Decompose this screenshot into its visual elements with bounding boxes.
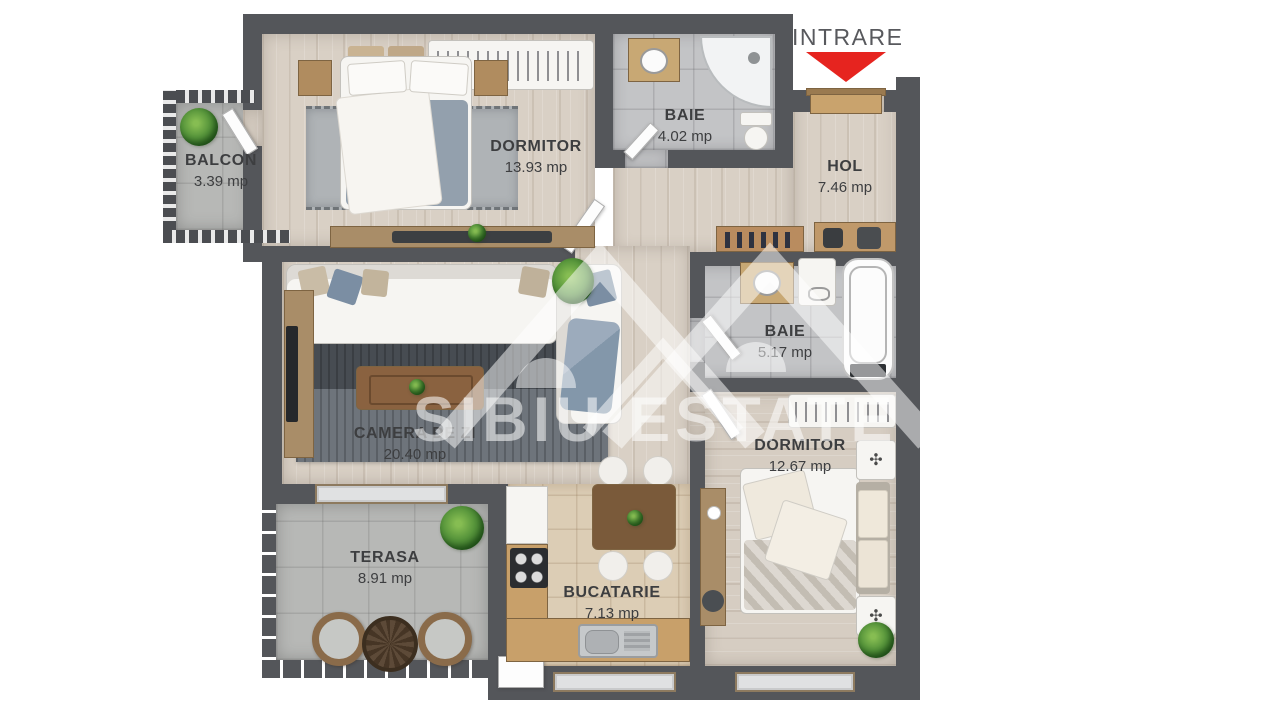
dining-table xyxy=(592,484,676,550)
wall-bucatarie-terasa xyxy=(488,484,508,680)
kitchen-counter-top xyxy=(506,486,548,544)
wall-dormitor1-camera xyxy=(243,246,575,262)
dormitor2-wardrobe xyxy=(788,394,896,428)
wardrobe-hangers xyxy=(795,402,839,422)
tv xyxy=(286,326,298,422)
room-label-baie2: BAIE 5.17 mp xyxy=(710,321,860,364)
sofa-pillow xyxy=(518,266,550,298)
room-label-dormitor1: DORMITOR 13.93 mp xyxy=(456,136,616,179)
balcon-rail-top xyxy=(163,90,255,103)
nightstand-left xyxy=(298,60,332,96)
sink-bowl xyxy=(585,630,619,654)
window-bucatarie xyxy=(553,672,676,692)
room-area: 4.02 mp xyxy=(610,127,760,148)
bed1-pillow xyxy=(347,60,407,96)
washer-door xyxy=(808,287,830,301)
room-area: 7.46 mp xyxy=(770,178,920,199)
room-name: BALCON xyxy=(146,150,296,172)
baie1-sink xyxy=(640,48,668,74)
room-label-terasa: TERASA 8.91 mp xyxy=(310,547,460,590)
room-area: 12.67 mp xyxy=(720,457,880,478)
room-name: HOL xyxy=(770,156,920,178)
table-plant xyxy=(627,510,643,526)
wall-mid-a xyxy=(690,252,705,318)
balcon-rail-bottom xyxy=(163,230,290,243)
room-area: 7.13 mp xyxy=(532,604,692,625)
wall-baie2-bottom xyxy=(690,378,896,392)
washing-machine xyxy=(798,258,836,306)
coffee-table-plant xyxy=(409,379,425,395)
room-name: BAIE xyxy=(710,321,860,343)
sofa-pillow xyxy=(361,269,390,298)
baie2-sink xyxy=(753,270,781,296)
plant-balcon xyxy=(180,108,218,146)
cabinet-item xyxy=(857,227,881,249)
terasa-chair xyxy=(418,612,472,666)
plant-dormitor2 xyxy=(858,622,894,658)
dining-chair xyxy=(598,456,628,486)
nightstand-right xyxy=(474,60,508,96)
room-name: BUCATARIE xyxy=(532,582,692,604)
room-label-dormitor2: DORMITOR 12.67 mp xyxy=(720,435,880,478)
sofa-throw-blanket xyxy=(559,318,620,415)
wall-baie1-right xyxy=(775,14,793,168)
room-label-bucatarie: BUCATARIE 7.13 mp xyxy=(532,582,692,625)
desk-stool xyxy=(702,590,724,612)
bed1-pillow xyxy=(409,60,469,96)
terasa-chair xyxy=(312,612,366,666)
plant-terasa xyxy=(440,506,484,550)
window-dormitor2 xyxy=(735,672,855,692)
shower-head xyxy=(748,52,760,64)
room-name: DORMITOR xyxy=(456,136,616,158)
room-area: 13.93 mp xyxy=(456,158,616,179)
dining-chair xyxy=(598,551,628,581)
entrance-label: INTRARE xyxy=(792,24,922,51)
entrance-door xyxy=(810,94,882,114)
room-name: BAIE xyxy=(610,105,760,127)
shoes xyxy=(725,232,795,248)
entrance-arrow-icon xyxy=(806,52,886,82)
terasa-table xyxy=(362,616,418,672)
room-label-baie1: BAIE 4.02 mp xyxy=(610,105,760,148)
plant-camera xyxy=(552,258,594,304)
coffee-table xyxy=(356,366,484,410)
shoe-bench xyxy=(716,226,804,252)
room-name: CAMERA DE ZI xyxy=(325,423,505,445)
cabinet-item xyxy=(823,228,843,248)
room-label-camera: CAMERA DE ZI 20.40 mp xyxy=(325,423,505,466)
wardrobe-hangers xyxy=(847,402,891,422)
hol-cabinet xyxy=(814,222,896,252)
room-label-balcon: BALCON 3.39 mp xyxy=(146,150,296,193)
window-camera-terasa xyxy=(315,484,448,504)
dining-chair xyxy=(643,551,673,581)
room-name: DORMITOR xyxy=(720,435,880,457)
wall-camera-left xyxy=(262,246,282,504)
headboard-cushion xyxy=(858,490,888,538)
terasa-rail-left xyxy=(262,504,276,678)
kitchen-sink xyxy=(578,624,658,658)
bath-mat xyxy=(850,364,886,377)
room-area: 20.40 mp xyxy=(325,445,505,466)
wall-top xyxy=(243,14,793,34)
wall-terasa-top-left xyxy=(262,484,315,504)
sink-drainer xyxy=(624,631,650,651)
room-name: TERASA xyxy=(310,547,460,569)
bed1-blanket xyxy=(335,87,443,216)
dining-chair xyxy=(643,456,673,486)
room-area: 8.91 mp xyxy=(310,569,460,590)
room-area: 3.39 mp xyxy=(146,172,296,193)
plant-dormitor1 xyxy=(468,224,486,242)
desk-lamp xyxy=(707,506,721,520)
room-area: 5.17 mp xyxy=(710,343,860,364)
floor-plan: ✣ ✣ BALCON 3.39 mp DORMITOR xyxy=(0,0,1270,714)
headboard-cushion xyxy=(858,540,888,588)
room-label-hol: HOL 7.46 mp xyxy=(770,156,920,199)
